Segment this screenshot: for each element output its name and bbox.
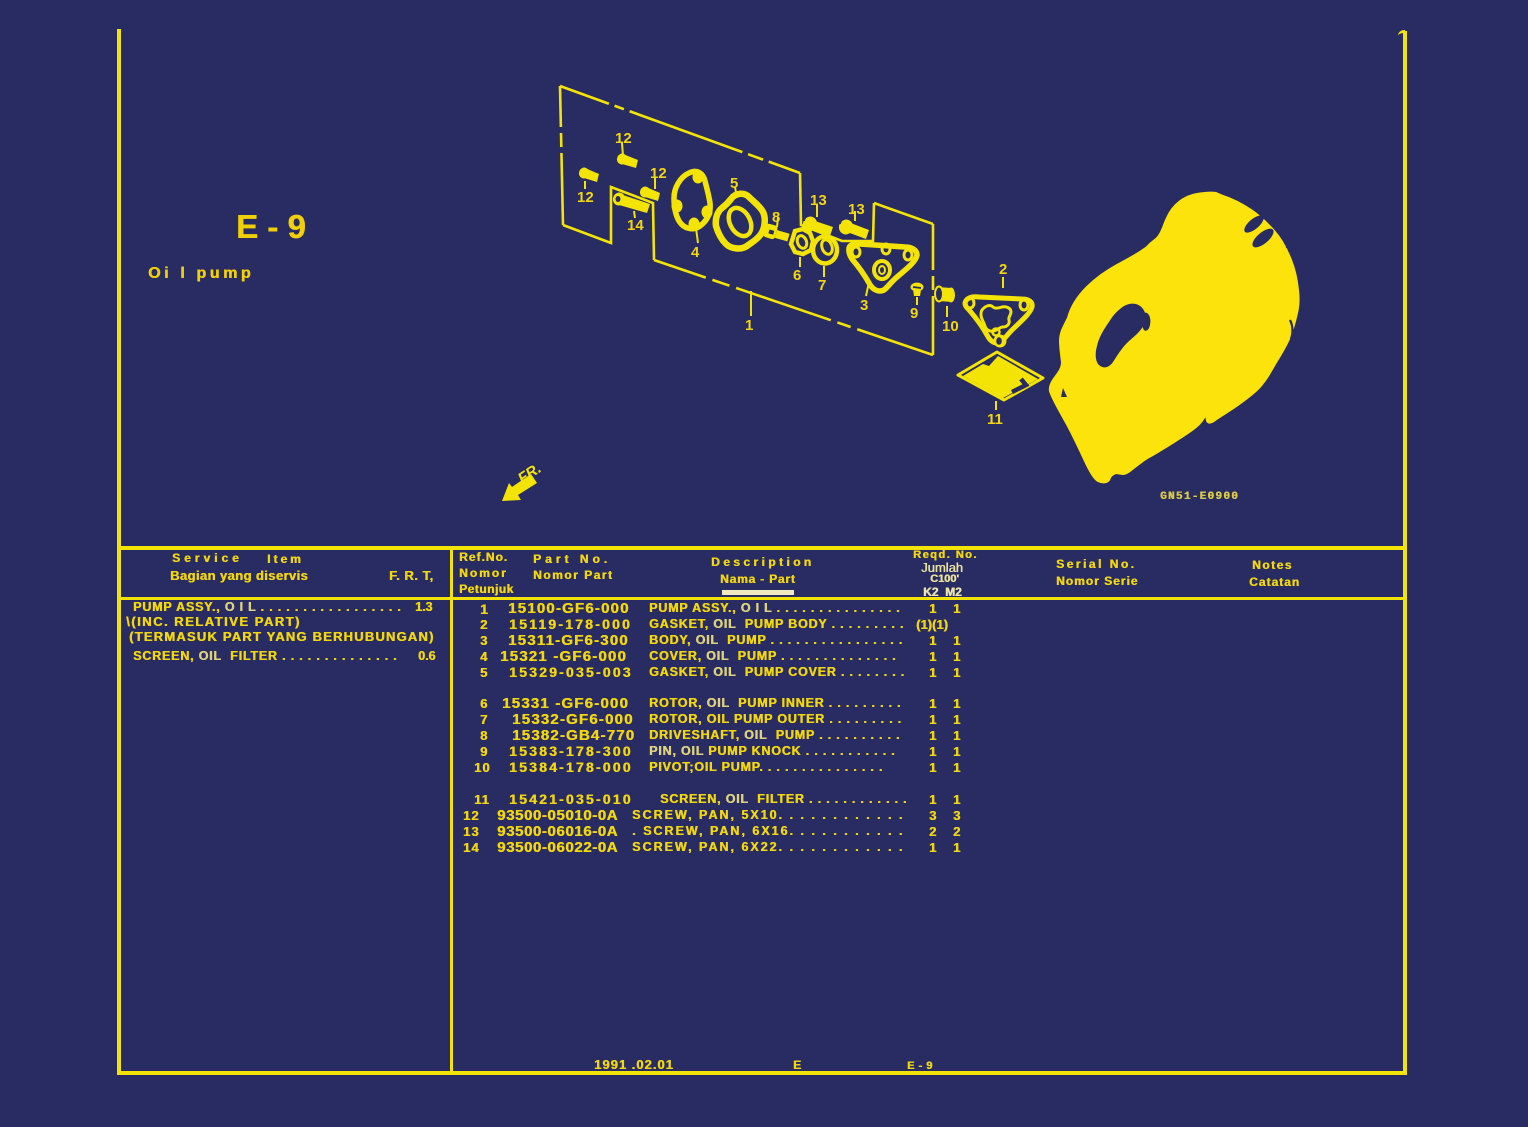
svg-text:12: 12 <box>615 130 632 147</box>
svg-text:7: 7 <box>818 277 826 294</box>
svg-text:4: 4 <box>691 244 700 261</box>
svg-text:13: 13 <box>848 201 865 218</box>
svg-text:5: 5 <box>730 175 738 192</box>
svg-text:10: 10 <box>942 318 959 335</box>
svg-text:13: 13 <box>810 192 827 209</box>
svg-text:14: 14 <box>627 217 644 234</box>
svg-text:3: 3 <box>860 297 868 314</box>
svg-text:9: 9 <box>910 305 918 322</box>
svg-text:8: 8 <box>772 209 780 226</box>
svg-text:1: 1 <box>745 317 753 334</box>
svg-text:2: 2 <box>999 261 1007 278</box>
svg-text:11: 11 <box>987 411 1003 428</box>
svg-text:6: 6 <box>793 267 801 284</box>
svg-text:12: 12 <box>577 189 594 206</box>
svg-text:12: 12 <box>650 165 667 182</box>
